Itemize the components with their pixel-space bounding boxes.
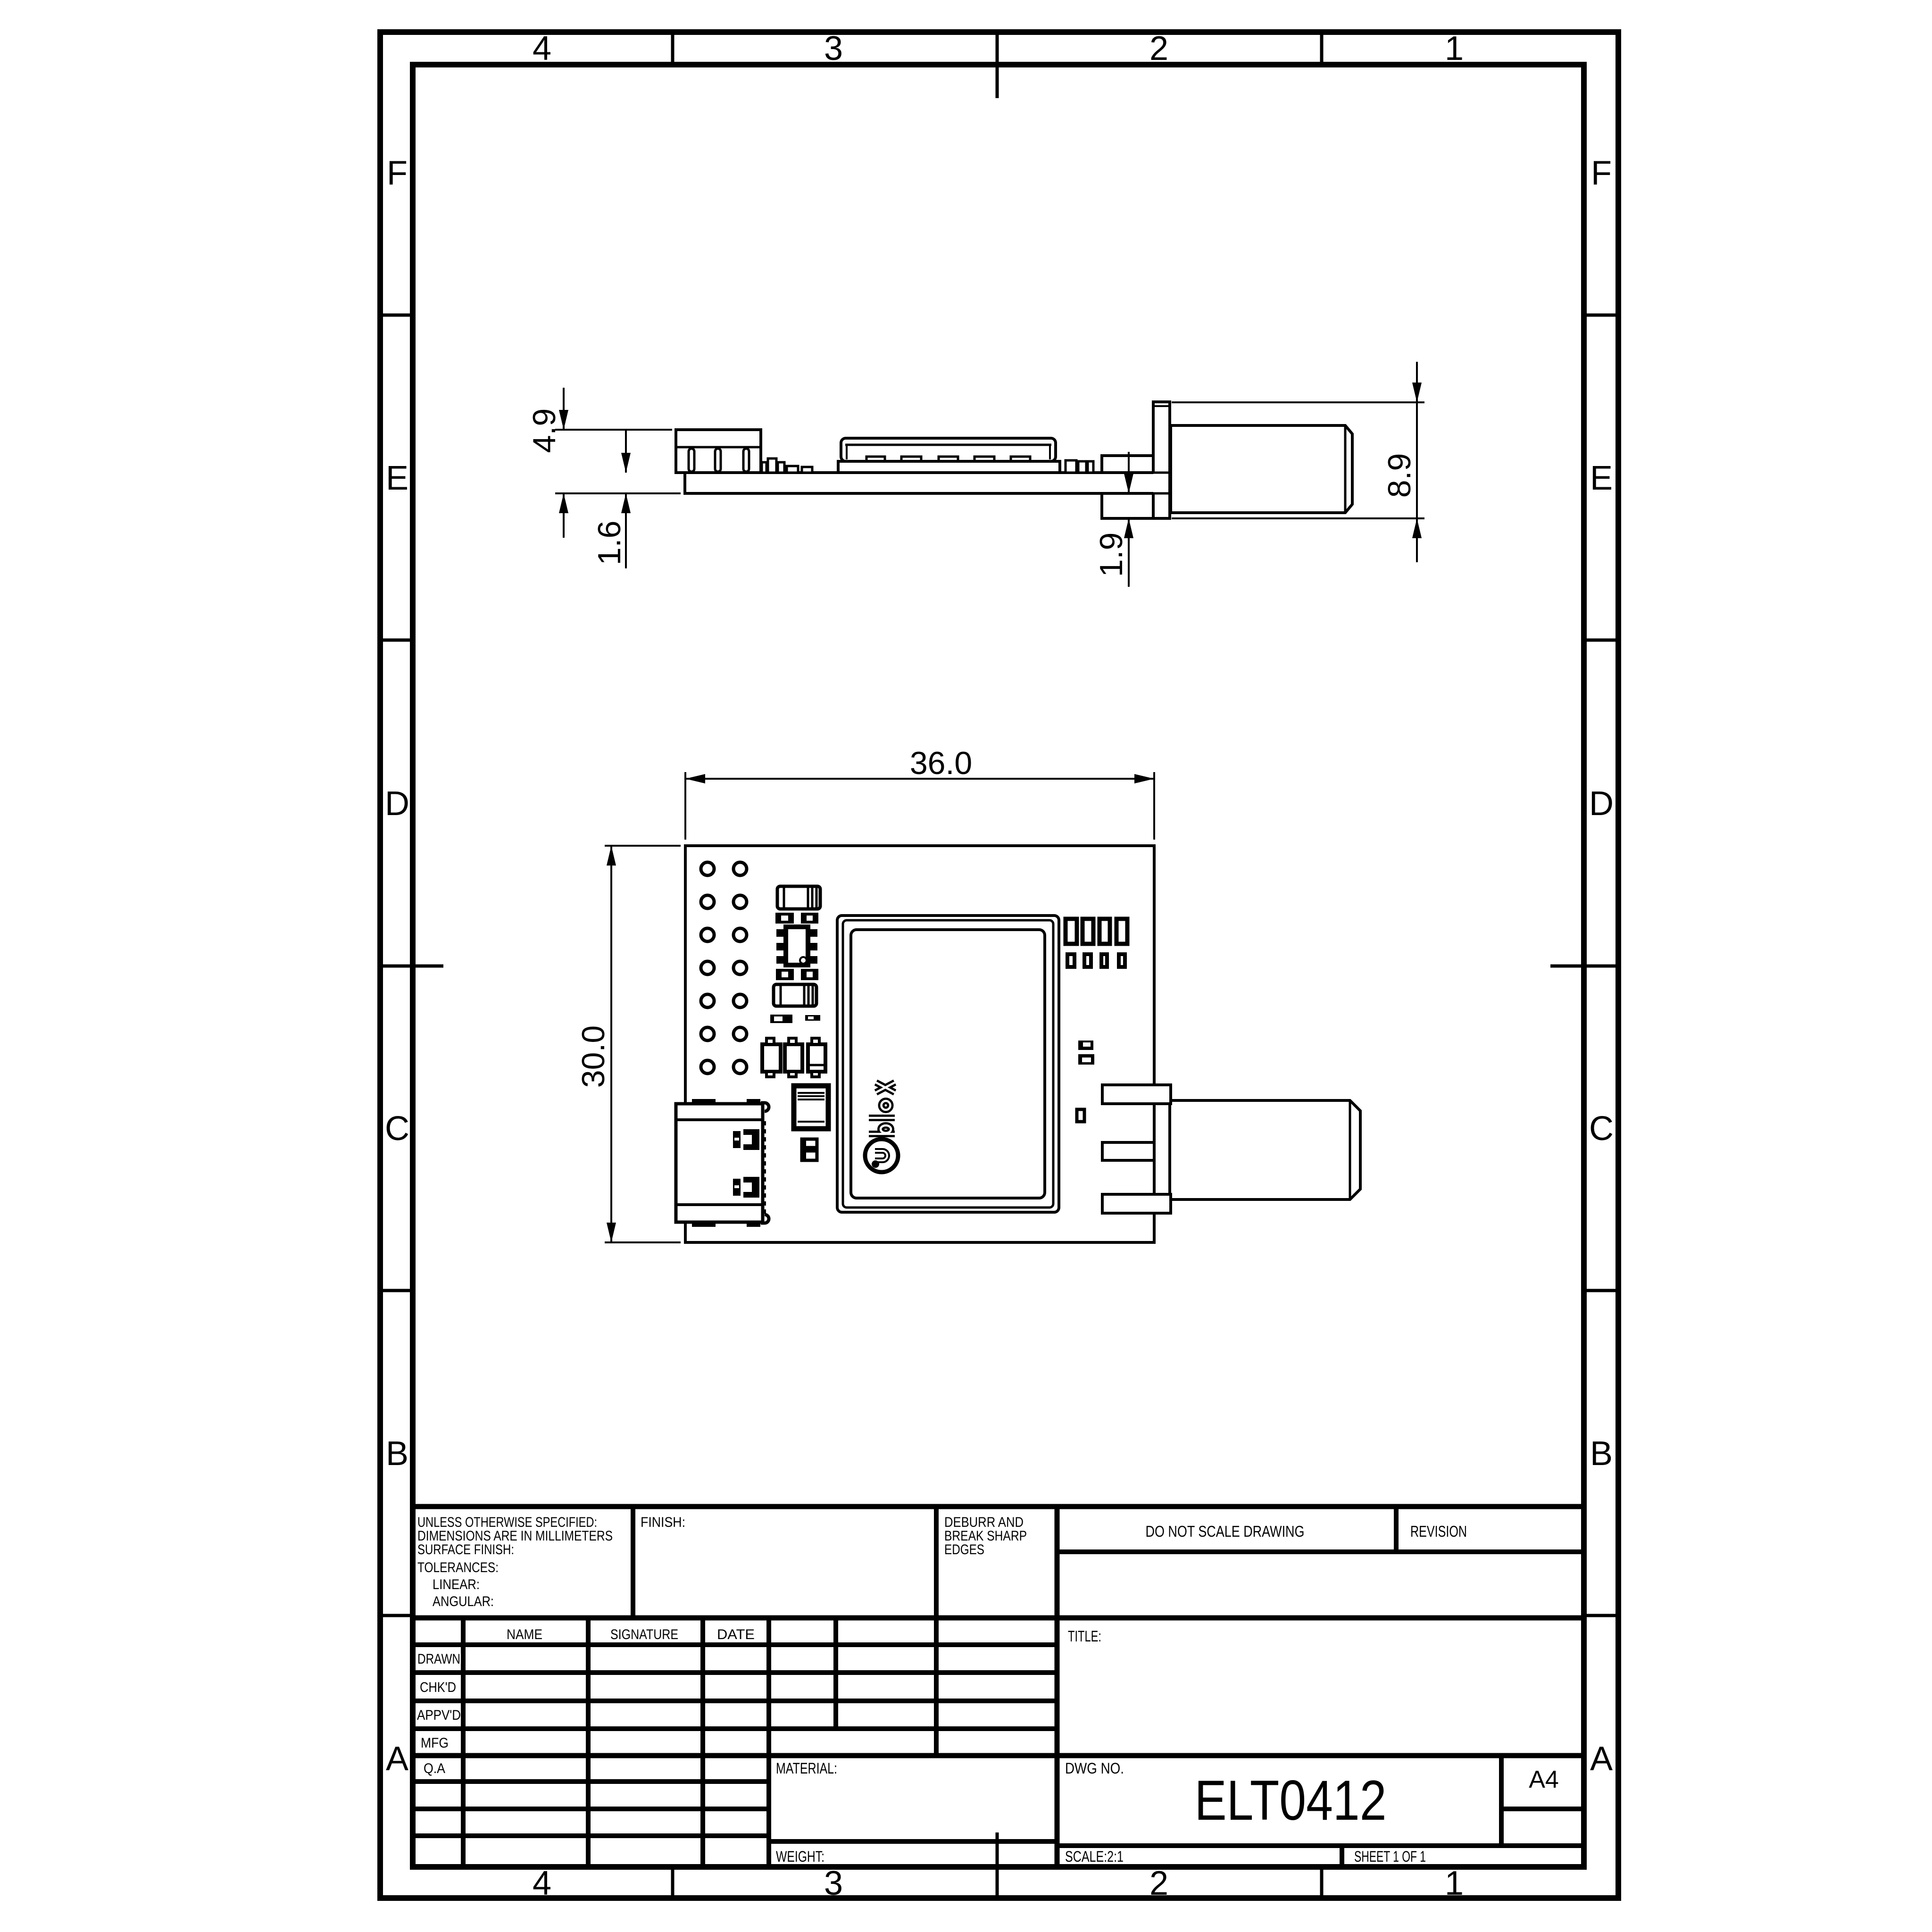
svg-text:NAME: NAME (507, 1627, 542, 1642)
svg-text:TITLE:: TITLE: (1068, 1628, 1101, 1645)
svg-text:Q.A: Q.A (424, 1761, 445, 1776)
svg-text:DWG NO.: DWG NO. (1065, 1760, 1124, 1777)
svg-text:ANGULAR:: ANGULAR: (433, 1594, 494, 1609)
svg-text:SIGNATURE: SIGNATURE (610, 1627, 678, 1642)
svg-text:C: C (385, 1110, 409, 1148)
svg-text:A: A (1590, 1740, 1613, 1778)
svg-text:8.9: 8.9 (1382, 453, 1417, 498)
svg-text:SURFACE FINISH:: SURFACE FINISH: (417, 1542, 514, 1557)
svg-text:F: F (387, 154, 408, 192)
svg-text:DATE: DATE (717, 1627, 755, 1642)
svg-text:1.9: 1.9 (1093, 533, 1129, 577)
svg-text:APPV'D: APPV'D (417, 1707, 461, 1723)
svg-text:4.9: 4.9 (526, 408, 562, 453)
svg-text:D: D (385, 785, 409, 823)
svg-text:36.0: 36.0 (910, 745, 972, 781)
svg-text:LINEAR:: LINEAR: (433, 1577, 480, 1592)
svg-text:FINISH:: FINISH: (641, 1515, 685, 1530)
svg-text:B: B (386, 1435, 408, 1473)
svg-text:C: C (1589, 1110, 1614, 1148)
svg-text:2: 2 (1149, 30, 1168, 67)
svg-text:E: E (386, 459, 408, 497)
svg-text:DO NOT SCALE DRAWING: DO NOT SCALE DRAWING (1146, 1523, 1305, 1540)
svg-text:A4: A4 (1529, 1766, 1559, 1793)
svg-text:E: E (1590, 459, 1613, 497)
svg-text:MFG: MFG (421, 1735, 449, 1751)
svg-text:MATERIAL:: MATERIAL: (776, 1760, 837, 1777)
svg-text:3: 3 (824, 30, 843, 67)
svg-text:1: 1 (1445, 30, 1464, 67)
svg-text:F: F (1591, 154, 1612, 192)
svg-text:TOLERANCES:: TOLERANCES: (417, 1560, 499, 1575)
svg-text:B: B (1590, 1435, 1613, 1473)
svg-text:4: 4 (533, 30, 551, 67)
svg-text:SCALE:2:1: SCALE:2:1 (1065, 1848, 1124, 1865)
svg-text:ELT0412: ELT0412 (1195, 1769, 1387, 1832)
svg-text:WEIGHT:: WEIGHT: (776, 1848, 824, 1865)
svg-text:4: 4 (533, 1865, 551, 1902)
svg-text:2: 2 (1149, 1865, 1168, 1902)
svg-text:DRAWN: DRAWN (417, 1651, 460, 1667)
svg-text:SHEET 1 OF 1: SHEET 1 OF 1 (1354, 1848, 1426, 1865)
svg-text:EDGES: EDGES (944, 1542, 984, 1557)
svg-text:D: D (1589, 785, 1614, 823)
svg-text:1: 1 (1445, 1865, 1464, 1902)
svg-text:CHK'D: CHK'D (420, 1680, 456, 1695)
svg-text:A: A (386, 1740, 408, 1778)
svg-text:1.6: 1.6 (591, 521, 627, 566)
svg-text:3: 3 (824, 1865, 843, 1902)
svg-text:30.0: 30.0 (575, 1025, 611, 1088)
svg-text:REVISION: REVISION (1410, 1523, 1467, 1540)
